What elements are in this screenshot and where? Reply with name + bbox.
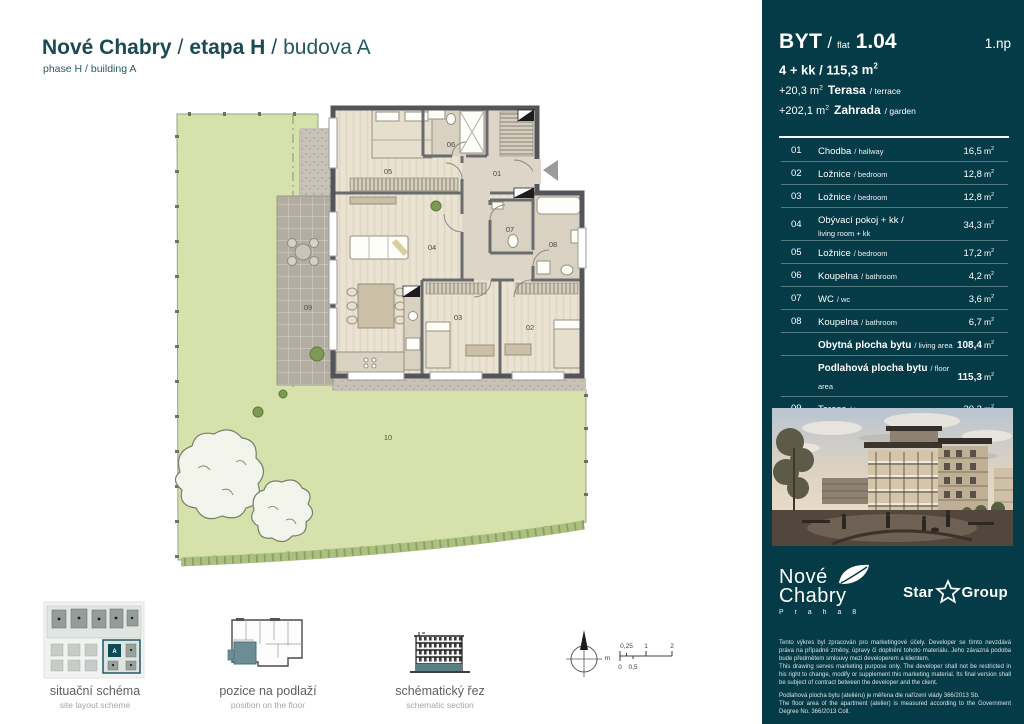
area-table-row: 02Ložnice/ bedroom12,8m2	[781, 162, 1008, 185]
room-label: 04	[428, 243, 436, 252]
info-sidebar: BYT / flat 1.04 1.np 4 + kk / 115,3 m2 +…	[762, 0, 1024, 724]
room-number: 01	[791, 145, 818, 156]
site-layout-caption: situační schéma site layout scheme	[25, 684, 165, 710]
area-table-row: Obytná plocha bytu/ living area108,4m2	[781, 333, 1008, 356]
room-area-value: 17,2m2	[963, 243, 1008, 261]
room-number: 06	[791, 270, 818, 281]
scale-tick: 2	[670, 643, 674, 650]
caption-subtitle: schematic section	[365, 700, 515, 710]
highlighted-floor	[416, 664, 462, 671]
area-table-row: Podlahová plocha bytu/ floor area115,3m2	[781, 356, 1008, 397]
logos-row: Nové Chabry P r a h a 8 Star Group	[779, 556, 1008, 628]
scale-bar: m 0,25 1 2 0 0,5	[605, 643, 675, 671]
room-number: 04	[791, 219, 818, 230]
section-thumbnail	[408, 628, 472, 680]
terrace-line: +20,3 m2Terasa/ terrace	[779, 83, 1011, 97]
scale-tick: 0,5	[628, 664, 637, 671]
partner-word1: Star	[903, 584, 933, 601]
header-divider	[779, 136, 1009, 138]
room-label: 07	[506, 225, 514, 234]
flat-header: BYT / flat 1.04 1.np 4 + kk / 115,3 m2 +…	[779, 30, 1011, 117]
terrace-bush	[310, 347, 324, 361]
room-name: Ložnice/ bedroom	[818, 185, 963, 207]
area-table-row: 08Koupelna/ bathroom6,7m2	[781, 310, 1008, 333]
building-rendering	[772, 408, 1013, 546]
disclaimer-en: This drawing serves marketing purpose on…	[779, 664, 1011, 688]
flat-number: 1.04	[856, 30, 897, 54]
room-area-value: 12,8m2	[963, 164, 1008, 182]
room-area-value: 3,6m2	[969, 289, 1008, 307]
room-area-value: 115,3m2	[957, 367, 1008, 385]
apartment: 01 02 03 04 05 06 07 08	[329, 108, 586, 380]
title-project: Nové Chabry	[42, 36, 172, 59]
garden-line: +202,1 m2Zahrada/ garden	[779, 103, 1011, 117]
disclaimer-measure-cz: Podlahová plocha bytu (ateliéru) je měře…	[779, 693, 1011, 701]
terrace-chair	[310, 257, 319, 266]
area-table-row: 04Obývací pokoj + kk /living room + kk34…	[781, 208, 1008, 241]
entrance-arrow-icon	[543, 160, 558, 181]
leaf-icon	[837, 562, 871, 588]
disclaimer-measure-en: The floor area of the apartment (atelier…	[779, 701, 1011, 717]
page-subtitle: phase H / building A	[43, 63, 136, 75]
page-title: Nové Chabry/etapa H/budova A	[42, 36, 371, 60]
terrace-chair	[288, 257, 297, 266]
room-area-value: 34,3m2	[963, 215, 1008, 233]
room-area-value: 108,4m2	[957, 335, 1008, 353]
star-icon	[935, 579, 961, 605]
area-table-row: 07WC/ wc3,6m2	[781, 287, 1008, 310]
room-area-value: 4,2m2	[969, 266, 1008, 284]
room-area-value: 6,7m2	[969, 312, 1008, 330]
room-label: 06	[447, 140, 455, 149]
room-label: 03	[454, 313, 462, 322]
floor-number: 1.np	[985, 36, 1011, 51]
scale-tick: 1	[644, 643, 648, 650]
gravel-area	[300, 128, 333, 196]
wardrobe	[350, 178, 458, 191]
flat-word: flat	[837, 40, 850, 51]
area-table-row: 01Chodba/ hallway16,5m2	[781, 139, 1008, 162]
star-group-logo: Star Group	[903, 579, 1008, 605]
room-number: 03	[791, 191, 818, 202]
terrace-chair	[288, 239, 297, 248]
room-label: 02	[526, 323, 534, 332]
room-name: Koupelna/ bathroom	[818, 264, 969, 286]
room-name: WC/ wc	[818, 287, 969, 309]
caption-subtitle: site layout scheme	[25, 700, 165, 710]
site-layout-thumbnail: A	[43, 600, 145, 680]
wardrobe	[426, 283, 486, 294]
floor-plan: 10 09	[160, 90, 690, 690]
brochure-page: Nové Chabry/etapa H/budova A phase H / b…	[0, 0, 1024, 724]
highlighted-unit	[234, 642, 256, 664]
brand-line2: Chabry	[779, 587, 861, 606]
area-table-row: 05Ložnice/ bedroom17,2m2	[781, 241, 1008, 264]
terrace-area: 09	[277, 196, 333, 385]
room-number: 07	[791, 293, 818, 304]
room-area-value: 12,8m2	[963, 187, 1008, 205]
caption-subtitle: position on the floor	[188, 700, 348, 710]
room-number: 08	[791, 316, 818, 327]
room-name: Koupelna/ bathroom	[818, 310, 969, 332]
caption-title: situační schéma	[25, 684, 165, 698]
section-caption: schématický řez schematic section	[365, 684, 515, 710]
room-name: Ložnice/ bedroom	[818, 162, 963, 184]
caption-title: pozice na podlaží	[188, 684, 348, 698]
room-name: Obývací pokoj + kk /living room + kk	[818, 208, 963, 240]
room-label: 01	[493, 169, 501, 178]
disclaimer-cz: Tento výkres byl zpracován pro marketing…	[779, 640, 1011, 664]
room-number: 02	[791, 168, 818, 179]
scale-unit: m	[605, 655, 610, 662]
block-a-label: A	[112, 649, 117, 655]
room-label: 05	[384, 167, 392, 176]
room-label: 08	[549, 240, 557, 249]
wardrobe	[516, 283, 578, 294]
bush	[279, 390, 287, 398]
floor-position-thumbnail	[226, 612, 310, 680]
nove-chabry-logo: Nové Chabry P r a h a 8	[779, 568, 861, 617]
bush	[253, 407, 263, 417]
room-name: Chodba/ hallway	[818, 139, 963, 161]
scale-tick: 0,25	[620, 643, 633, 650]
room-number: 05	[791, 247, 818, 258]
area-table-row: 03Ložnice/ bedroom12,8m2	[781, 185, 1008, 208]
room-name: Obytná plocha bytu/ living area	[818, 333, 957, 355]
room-name: Podlahová plocha bytu/ floor area	[818, 356, 957, 396]
disclaimer: Tento výkres byl zpracován pro marketing…	[779, 640, 1011, 717]
scale-tick: 0	[618, 664, 622, 671]
room-area-value: 16,5m2	[963, 141, 1008, 159]
floor-position-caption: pozice na podlaží position on the floor	[188, 684, 348, 710]
terrace-table	[295, 244, 311, 260]
partner-word2: Group	[962, 584, 1009, 601]
entrance-opening	[533, 159, 541, 184]
flat-layout: 4 + kk / 115,3 m2	[779, 62, 1011, 77]
terrace-chair	[310, 239, 319, 248]
title-phase: etapa H	[189, 36, 265, 59]
title-building: budova A	[283, 36, 371, 59]
caption-title: schématický řez	[365, 684, 515, 698]
brand-city: P r a h a 8	[779, 610, 861, 617]
north-arrow-icon	[566, 630, 602, 677]
terrace-label: 09	[304, 303, 312, 312]
flat-type-label: BYT	[779, 30, 823, 54]
room-name: Ložnice/ bedroom	[818, 241, 963, 263]
garden-label: 10	[384, 433, 392, 442]
area-table-row: 06Koupelna/ bathroom4,2m2	[781, 264, 1008, 287]
